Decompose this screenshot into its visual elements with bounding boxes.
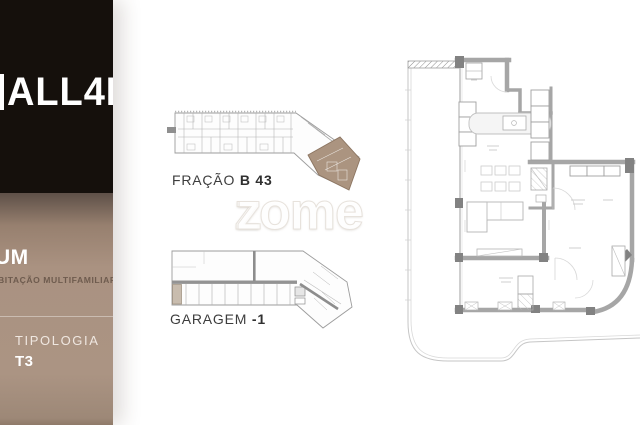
- tipologia-value: T3: [15, 353, 34, 370]
- fracao-caption-prefix: FRAÇÃO: [172, 172, 240, 188]
- garagem-caption-prefix: GARAGEM: [170, 311, 252, 327]
- project-subtitle: BITAÇÃO MULTIFAMILIAR: [0, 275, 113, 285]
- brand-letter-fragment: [0, 74, 4, 110]
- brand-box: ALL4K: [0, 0, 113, 193]
- tipologia-label: TIPOLOGIA: [15, 333, 99, 348]
- left-panel: ALL4K UM BITAÇÃO MULTIFAMILIAR TIPOLOGIA…: [0, 0, 113, 425]
- apartment-floorplan: [403, 50, 640, 372]
- garagem-caption-bold: -1: [252, 311, 266, 327]
- zome-watermark: z zome: [236, 186, 416, 238]
- project-name: UM: [0, 246, 29, 270]
- brand-logo-text: ALL4K: [7, 72, 113, 112]
- panel-divider: [0, 316, 113, 317]
- watermark-overlap-letter: z: [236, 186, 261, 238]
- info-panel: UM BITAÇÃO MULTIFAMILIAR TIPOLOGIA T3: [0, 193, 113, 425]
- garagem-caption: GARAGEM -1: [170, 311, 266, 327]
